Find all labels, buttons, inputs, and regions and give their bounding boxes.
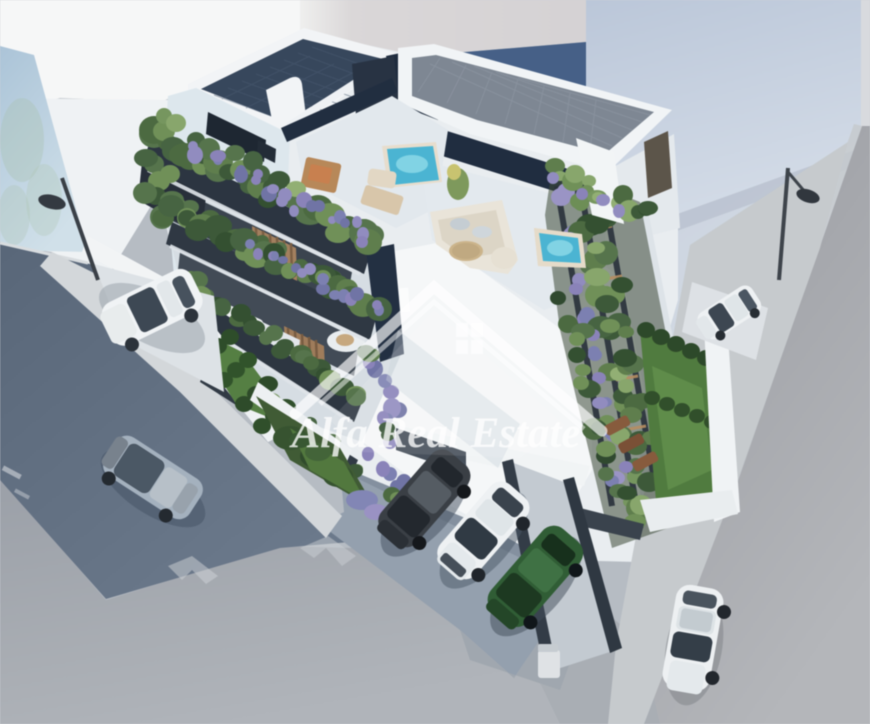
svg-text:Alfa Real Estate: Alfa Real Estate [288,410,580,457]
